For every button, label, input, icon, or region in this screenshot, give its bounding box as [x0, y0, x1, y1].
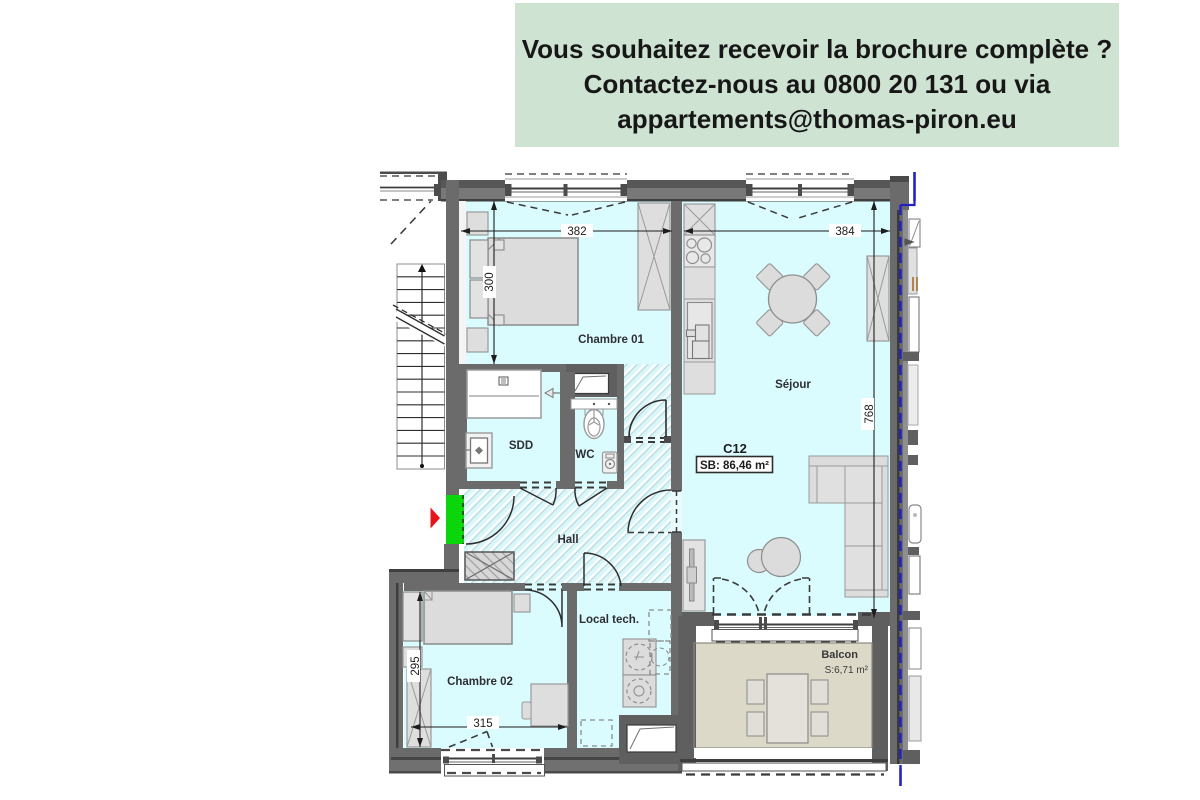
- svg-text:Local tech.: Local tech.: [579, 614, 639, 626]
- svg-text:295: 295: [410, 656, 422, 675]
- svg-text:SDD: SDD: [509, 440, 533, 452]
- svg-text:S:6,71 m²: S:6,71 m²: [825, 665, 869, 676]
- svg-text:315: 315: [473, 718, 492, 730]
- svg-text:768: 768: [864, 404, 876, 423]
- svg-text:WC: WC: [575, 449, 594, 461]
- svg-text:Hall: Hall: [557, 534, 578, 546]
- svg-text:Chambre 02: Chambre 02: [447, 676, 513, 688]
- svg-text:Contactez-nous au 0800 20 131: Contactez-nous au 0800 20 131 ou via: [584, 69, 1051, 99]
- svg-text:Séjour: Séjour: [775, 379, 811, 391]
- svg-text:appartements@thomas-piron.eu: appartements@thomas-piron.eu: [617, 104, 1017, 134]
- svg-text:SB: 86,46 m²: SB: 86,46 m²: [700, 460, 769, 472]
- svg-text:Balcon: Balcon: [821, 649, 858, 661]
- svg-text:Vous souhaitez recevoir la bro: Vous souhaitez recevoir la brochure comp…: [522, 34, 1112, 64]
- svg-text:300: 300: [484, 272, 496, 291]
- svg-text:Chambre 01: Chambre 01: [578, 334, 644, 346]
- svg-text:C12: C12: [723, 441, 747, 456]
- svg-text:382: 382: [567, 226, 586, 238]
- svg-text:384: 384: [835, 226, 855, 238]
